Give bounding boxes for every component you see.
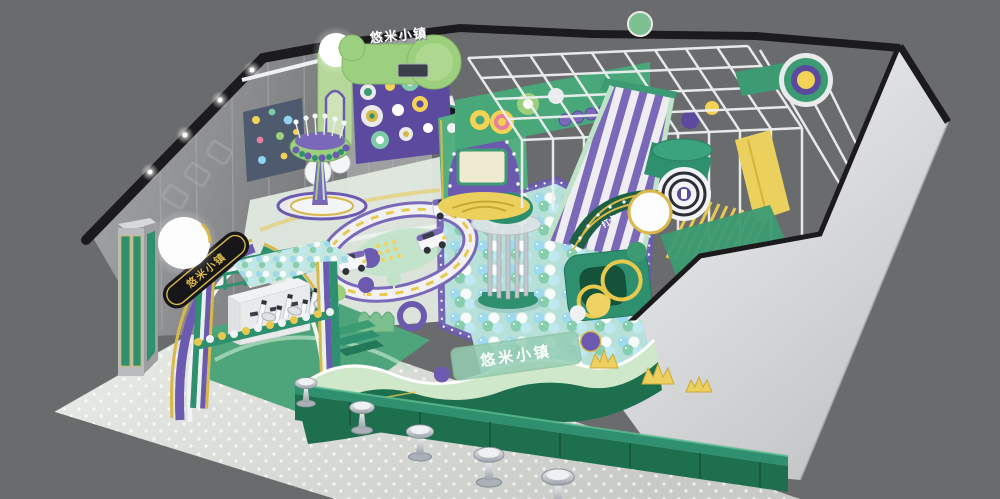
flower-target-decor: [779, 53, 833, 107]
round-sign-board: [629, 191, 671, 233]
sign-screen: [398, 64, 428, 77]
scene-canvas: 悠米小镇 悠米小镇: [0, 0, 1000, 499]
entrance-pillar: [118, 218, 158, 376]
green-disc: [628, 12, 652, 36]
projection-screen: [458, 150, 506, 184]
playground-render: 悠米小镇 悠米小镇: [0, 0, 1000, 499]
